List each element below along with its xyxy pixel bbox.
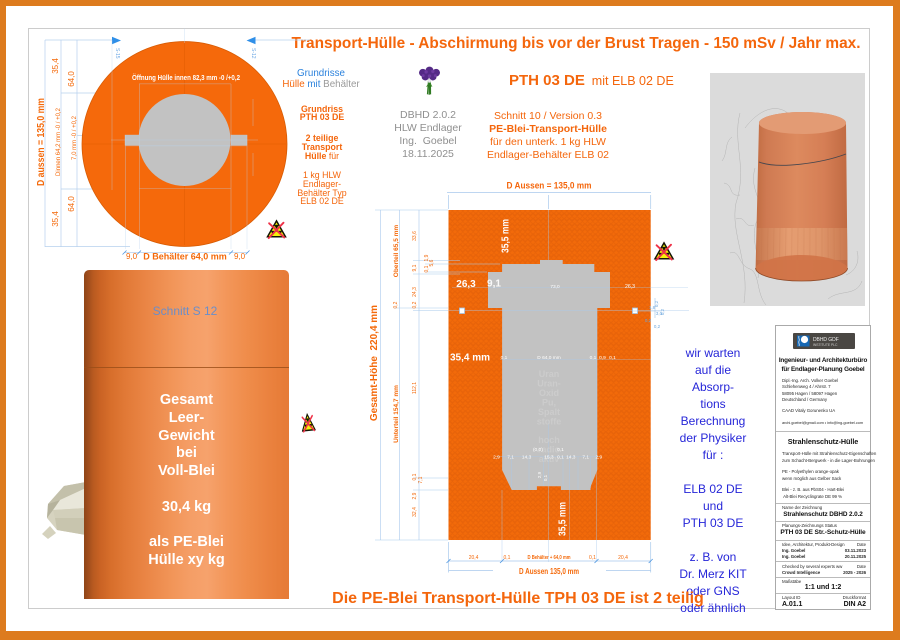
svg-text:Spalt: Spalt [538,407,560,417]
svg-text:0,2: 0,2 [645,318,652,323]
svg-text:Öffnung Hülle innen 82,3 mm -0: Öffnung Hülle innen 82,3 mm -0 /+0,2 [132,73,240,82]
svg-text:7,1: 7,1 [507,455,514,461]
svg-text:1,8: 1,8 [649,305,656,310]
svg-text:35,5 mm: 35,5 mm [500,219,512,253]
svg-text:35,4: 35,4 [51,58,60,74]
svg-text:2,9: 2,9 [595,455,602,461]
svg-text:5,6: 5,6 [429,259,435,266]
svg-text:Oxid: Oxid [539,388,559,398]
svg-text:35,4: 35,4 [51,211,60,227]
svg-text:DBHD GDF: DBHD GDF [813,337,839,343]
svg-text:14,3: 14,3 [566,455,576,461]
svg-text:D 64,0 mm: D 64,0 mm [537,355,560,361]
svg-text:2,9: 2,9 [537,471,542,478]
svg-text:9,0: 9,0 [126,252,138,261]
svg-text:Uran-: Uran- [537,379,561,389]
svg-text:7,1: 7,1 [582,455,589,461]
svg-text:15,3: 15,3 [544,455,554,461]
svg-text:7,1: 7,1 [418,476,424,483]
svg-text:64,0: 64,0 [67,196,76,212]
svg-text:S-12: S-12 [250,48,256,59]
svg-text:hoch: hoch [538,435,560,445]
svg-text:73,0: 73,0 [550,284,560,290]
svg-text:Dinnen 64,2 mm -0 / +0,2: Dinnen 64,2 mm -0 / +0,2 [56,107,62,176]
svg-text:0,1: 0,1 [609,355,616,361]
svg-text:33,6: 33,6 [412,231,418,241]
svg-text:0,1: 0,1 [504,555,511,561]
svg-text:0,1: 0,1 [589,555,596,561]
svg-text:0,1: 0,1 [424,265,430,272]
svg-text:35,4 mm: 35,4 mm [450,353,490,364]
svg-text:2,9: 2,9 [493,455,500,461]
svg-text:64,0: 64,0 [67,71,76,87]
svg-text:14,3: 14,3 [522,455,532,461]
svg-text:26,3: 26,3 [456,279,476,290]
svg-text:0,1: 0,1 [557,447,564,453]
svg-text:0,2: 0,2 [393,301,399,308]
svg-text:0,2: 0,2 [412,301,418,308]
svg-text:3,0: 3,0 [656,311,663,316]
svg-text:9,0: 9,0 [234,252,246,261]
svg-text:20,4: 20,4 [618,555,628,561]
svg-text:20,4: 20,4 [469,555,479,561]
svg-text:0,9: 0,9 [599,355,606,361]
svg-text:26,3: 26,3 [625,284,635,290]
svg-text:D Behälter + 64,0 mm: D Behälter + 64,0 mm [528,555,571,561]
svg-text:112,1: 112,1 [412,382,418,394]
svg-text:0,1: 0,1 [501,355,508,361]
svg-text:Oberteil 65,5 mm: Oberteil 65,5 mm [393,225,400,278]
svg-text:INSTITUTE PLC: INSTITUTE PLC [813,343,838,347]
svg-text:D aussen = 135,0 mm: D aussen = 135,0 mm [36,98,47,186]
svg-text:Gesamt-Höhe 220,4 mm: Gesamt-Höhe 220,4 mm [369,305,380,421]
svg-text:9,1: 9,1 [412,264,418,271]
svg-text:32,4: 32,4 [412,507,418,517]
svg-text:0,1: 0,1 [557,455,564,461]
svg-text:Unterteil 154,7 mm: Unterteil 154,7 mm [393,385,400,443]
svg-text:D Aussen 135,0 mm: D Aussen 135,0 mm [519,566,579,576]
svg-text:0,2: 0,2 [654,324,661,329]
svg-text:35,5 mm: 35,5 mm [557,502,569,536]
svg-text:Pu,: Pu, [542,398,556,408]
svg-text:D Aussen = 135,0 mm: D Aussen = 135,0 mm [507,181,592,192]
svg-text:S-15: S-15 [114,48,120,59]
svg-text:0,1: 0,1 [590,355,597,361]
svg-text:24,3: 24,3 [412,287,418,297]
svg-text:stoffe: stoffe [537,417,562,427]
svg-text:(0,0): (0,0) [533,447,543,453]
svg-text:7,0 mm -0 / +0,2: 7,0 mm -0 / +0,2 [72,115,78,160]
svg-text:9,1: 9,1 [487,279,501,290]
svg-text:2,9: 2,9 [412,492,418,499]
svg-text:0,1: 0,1 [543,474,548,481]
svg-text:Uran: Uran [539,369,560,379]
svg-text:D Behälter 64,0 mm: D Behälter 64,0 mm [143,252,227,262]
